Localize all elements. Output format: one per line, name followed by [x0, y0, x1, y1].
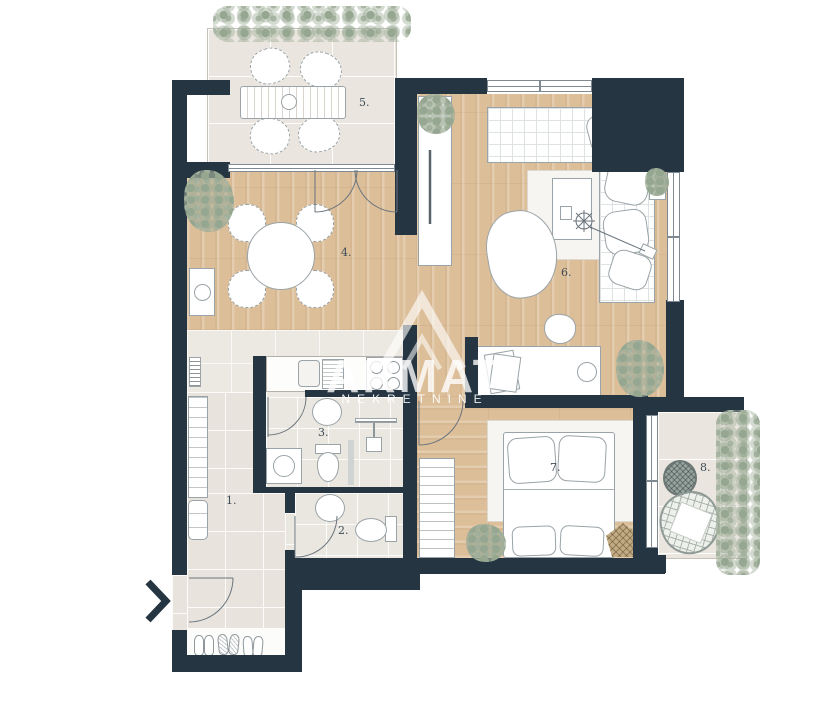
- kitchen-appliance-drum: [194, 284, 211, 301]
- towel-radiator: [355, 418, 397, 423]
- floor-plan: 1. 2. 3. 4. 5. 6. 7. 8. ARMAT NEKRETNINE: [0, 0, 826, 706]
- room-label-bedroom: 7.: [550, 461, 561, 474]
- radiator: [189, 357, 201, 387]
- coffee-table-decor: [560, 206, 572, 220]
- terrace-glazing: [228, 164, 395, 172]
- room-label-living: 6.: [561, 266, 572, 279]
- balcony-door-window: [646, 415, 658, 548]
- kitchen-sink-bowl: [298, 360, 320, 387]
- entrance-arrow-icon: [148, 582, 166, 620]
- bedroom-door-gap-floor: [417, 397, 465, 408]
- wall-segment: [253, 356, 266, 491]
- wall-segment: [285, 493, 295, 513]
- kitchen-plant: [184, 170, 234, 232]
- desk-stool: [577, 362, 597, 382]
- wall-segment: [417, 78, 487, 94]
- desk-papers: [489, 353, 522, 393]
- room-label-kitchen: 4.: [341, 246, 352, 259]
- dining-table: [247, 222, 315, 290]
- towel-radiator-stem: [373, 423, 375, 437]
- wall-segment: [285, 558, 420, 590]
- entrance-door-gap-floor: [172, 575, 187, 630]
- wall-segment: [633, 397, 646, 573]
- pillow: [506, 435, 557, 484]
- room-label-toilet: 2.: [338, 524, 349, 537]
- shoe: [194, 635, 204, 656]
- foot-cushion: [511, 525, 556, 557]
- shoe: [204, 635, 214, 656]
- hallway-closet: [188, 396, 208, 498]
- wall-segment: [465, 337, 478, 397]
- side-table-plant: [645, 168, 669, 196]
- window: [487, 80, 592, 92]
- pillow: [557, 435, 607, 483]
- washing-machine-drum: [273, 455, 295, 477]
- wall-segment: [395, 78, 417, 235]
- stove-burner: [370, 361, 383, 374]
- stove-burner: [387, 361, 400, 374]
- wall-segment: [666, 300, 684, 412]
- wall-segment: [465, 395, 648, 408]
- toilet-bowl: [355, 518, 387, 542]
- bed-blanket: [504, 489, 614, 531]
- room-label-balcony: 8.: [700, 461, 711, 474]
- balcony-chair-cushion: [669, 501, 713, 543]
- wall-segment: [403, 325, 417, 558]
- wall-segment: [640, 555, 666, 573]
- balcony-hedge-plant: [716, 410, 760, 575]
- foot-cushion: [559, 525, 605, 557]
- wall-segment: [592, 78, 684, 172]
- living-plant: [616, 340, 664, 397]
- terrace-table-centerpiece: [281, 94, 297, 110]
- shoe-cabinet: [188, 500, 208, 540]
- window: [667, 172, 680, 302]
- terrace-hedge-plant: [213, 6, 411, 42]
- wall-segment: [172, 655, 302, 672]
- bedroom-plant: [466, 524, 506, 562]
- room-label-terrace: 5.: [359, 96, 370, 109]
- shower-screen: [348, 440, 354, 485]
- wall-segment: [253, 487, 403, 493]
- coffee-table: [552, 178, 592, 240]
- stove-burner: [370, 377, 383, 390]
- wardrobe: [419, 458, 455, 558]
- room-label-hallway: 1.: [226, 494, 237, 507]
- toilet-door-gap-floor: [285, 513, 295, 550]
- tv-console-plant: [417, 94, 455, 134]
- kitchen-stove: [366, 357, 403, 391]
- wall-segment: [285, 550, 295, 558]
- bathroom-washbasin: [312, 398, 342, 426]
- wall-segment: [403, 558, 665, 574]
- kitchen-sink-drainer: [322, 359, 344, 389]
- towel-radiator-valve: [366, 437, 382, 452]
- stove-burner: [387, 377, 400, 390]
- wall-segment: [305, 390, 403, 397]
- kitchen-living-passage-floor: [403, 235, 417, 330]
- room-label-bathroom: 3.: [318, 426, 329, 439]
- wall-segment: [172, 80, 187, 575]
- toilet-washbasin: [315, 494, 345, 522]
